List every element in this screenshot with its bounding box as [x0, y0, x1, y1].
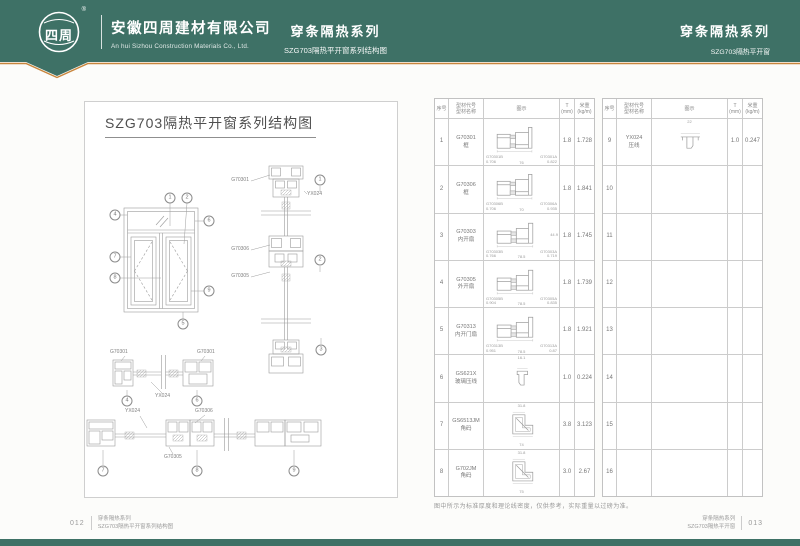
dimension-width: 78.5 — [518, 255, 526, 260]
profile-name: 内开扇 — [458, 237, 475, 244]
dimension-value: 0.706 — [486, 159, 496, 164]
dimension-value: 0.951 — [486, 348, 496, 353]
profile-section-drawing — [485, 356, 558, 400]
dimension-top: 31.8 — [518, 451, 526, 456]
cell-diagram — [651, 355, 727, 401]
profile-code-label: YX024 — [155, 394, 170, 399]
row-number: 7 — [440, 422, 443, 430]
table-note: 图中所示为标准厚度和理论线密度，仅供参考，实际重量以过磅为准。 — [434, 501, 632, 510]
row-number: 6 — [440, 375, 443, 383]
dimension-label-left: G70303B0.766 — [486, 250, 503, 259]
cell-no: 1 — [435, 119, 448, 165]
cell-thickness: 3.0 — [559, 450, 574, 496]
footer-divider-right — [741, 516, 742, 530]
weight-value: 0.247 — [745, 138, 760, 146]
weight-value: 1.745 — [577, 233, 592, 241]
footer-right: 穿条隔热系列 SZG703隔热平开窗 013 — [687, 516, 763, 530]
table-row: 3G70303内开扇G70303B0.76678.5G70303A0.71944… — [435, 213, 594, 260]
header-weight: 米重(kg/m) — [574, 99, 594, 118]
profile-table-right: 序号型材代号型材名称图示T(mm)米重(kg/m)9YX024压线221.00.… — [602, 98, 763, 497]
row-number: 9 — [608, 138, 611, 146]
cell-no: 4 — [435, 261, 448, 307]
section-callout: 3 — [316, 345, 327, 356]
weight-value: 1.728 — [577, 138, 592, 146]
cell-weight: 1.739 — [574, 261, 594, 307]
cell-diagram — [651, 450, 727, 496]
section-callout: 1 — [315, 175, 326, 186]
profile-code: G702JM — [456, 466, 477, 473]
profile-name: 玻璃压线 — [455, 379, 477, 386]
header-divider — [101, 15, 102, 49]
cell-thickness: 1.0 — [727, 119, 742, 165]
cell-weight — [742, 214, 762, 260]
cell-thickness: 3.8 — [559, 403, 574, 449]
footer-subtitle-left: SZG703隔热平开窗系列结构图 — [98, 524, 173, 530]
header-weight: 米重(kg/m) — [742, 99, 762, 118]
cell-diagram: 16.1 — [483, 355, 559, 401]
header-no: 序号 — [435, 99, 448, 118]
header-diagram: 图示 — [483, 99, 559, 118]
cell-code: GS621X玻璃压线 — [448, 355, 483, 401]
section-callout: 4 — [122, 396, 133, 407]
thickness-value: 1.0 — [563, 375, 571, 383]
profile-table-left: 序号型材代号型材名称图示T(mm)米重(kg/m)1G70301框G70301B… — [434, 98, 595, 497]
cell-code — [616, 403, 651, 449]
profile-name: 框 — [463, 190, 469, 197]
table-row: 4G70305外开扇G70305B0.90478.5G70305A0.8351.… — [435, 260, 594, 307]
cell-code: G70305外开扇 — [448, 261, 483, 307]
row-number: 16 — [606, 469, 613, 477]
cell-weight: 2.67 — [574, 450, 594, 496]
cell-no: 15 — [603, 403, 616, 449]
cell-diagram: 22 — [651, 119, 727, 165]
cell-code — [616, 450, 651, 496]
cell-no: 12 — [603, 261, 616, 307]
header-name-label: 型材名称 — [624, 109, 644, 115]
cell-weight: 1.921 — [574, 308, 594, 354]
profile-table-page: 序号型材代号型材名称图示T(mm)米重(kg/m)1G70301框G70301B… — [434, 98, 763, 497]
weight-value: 1.739 — [577, 280, 592, 288]
section-callout: 7 — [98, 466, 109, 477]
cell-weight: 0.224 — [574, 355, 594, 401]
registered-trademark-icon: ® — [82, 7, 86, 13]
profile-code-label: YX024 — [307, 192, 322, 197]
footer-divider-left — [91, 516, 92, 530]
cell-code — [616, 261, 651, 307]
header-no: 序号 — [603, 99, 616, 118]
thickness-value: 1.8 — [563, 327, 571, 335]
profile-code: G70306 — [456, 182, 476, 189]
cell-weight: 0.247 — [742, 119, 762, 165]
thickness-value: 1.8 — [563, 186, 571, 194]
row-number: 4 — [440, 280, 443, 288]
footer-left: 012 穿条隔热系列 SZG703隔热平开窗系列结构图 — [70, 516, 173, 530]
cell-code — [616, 308, 651, 354]
table-row: 15 — [603, 402, 762, 449]
series-title-center: 穿条隔热系列 — [248, 21, 423, 40]
header-diagram-label: 图示 — [516, 106, 526, 112]
cell-code: YX024压线 — [616, 119, 651, 165]
section-callout: 8 — [192, 466, 203, 477]
row-number: 1 — [440, 138, 443, 146]
profile-code-label: G70306 — [231, 247, 249, 252]
weight-value: 1.921 — [577, 327, 592, 335]
profile-name: 外开扇 — [458, 284, 475, 291]
row-number: 13 — [606, 327, 613, 335]
dimension-label-left: G70306B0.706 — [486, 202, 503, 211]
header-weight-unit: (kg/m) — [577, 109, 591, 115]
profile-name: 内开门扇 — [455, 332, 477, 339]
cell-code — [616, 166, 651, 212]
thickness-value: 3.8 — [563, 422, 571, 430]
cell-diagram — [651, 166, 727, 212]
table-row: 11 — [603, 213, 762, 260]
section-callout: 4 — [110, 210, 121, 221]
cell-weight: 1.728 — [574, 119, 594, 165]
header-diagram: 图示 — [651, 99, 727, 118]
table-header-row: 序号型材代号型材名称图示T(mm)米重(kg/m) — [603, 99, 762, 118]
table-header-row: 序号型材代号型材名称图示T(mm)米重(kg/m) — [435, 99, 594, 118]
profile-name: 角码 — [460, 426, 471, 433]
profile-section-drawing — [653, 120, 726, 164]
cell-no: 10 — [603, 166, 616, 212]
cell-thickness: 1.0 — [559, 355, 574, 401]
table-row: 7GS6513JM角码31.8743.83.123 — [435, 402, 594, 449]
cell-diagram: G70303B0.76678.5G70303A0.71944.9 — [483, 214, 559, 260]
footer-subtitle-right: SZG703隔热平开窗 — [687, 524, 735, 530]
cell-no: 13 — [603, 308, 616, 354]
profile-name: 框 — [463, 143, 469, 150]
dimension-label-right: G70301A0.822 — [540, 155, 557, 164]
section-callout: 2 — [182, 193, 193, 204]
cell-weight: 3.123 — [574, 403, 594, 449]
profile-code-label: G70305 — [231, 274, 249, 279]
dimension-top: 31.8 — [518, 404, 526, 409]
cell-code: G70306框 — [448, 166, 483, 212]
table-row: 8G702JM角码31.8753.02.67 — [435, 449, 594, 496]
table-row: 2G70306框G70306B0.70670G70306A0.9351.81.8… — [435, 165, 594, 212]
table-row: 16 — [603, 449, 762, 496]
table-row: 10 — [603, 165, 762, 212]
series-subtitle-right: SZG703隔热平开窗 — [680, 46, 770, 56]
cell-no: 2 — [435, 166, 448, 212]
dimension-label-right: G70303A0.719 — [540, 250, 557, 259]
header-no-label: 序号 — [604, 106, 614, 112]
row-number: 12 — [606, 280, 613, 288]
profile-code: G70303 — [456, 229, 476, 236]
dimension-label-left: G70301B0.706 — [486, 155, 503, 164]
table-row: 14 — [603, 354, 762, 401]
structure-diagram — [85, 102, 399, 499]
thickness-value: 3.0 — [563, 469, 571, 477]
company-name: 安徽四周建材有限公司 — [111, 17, 271, 38]
header-thickness: T(mm) — [559, 99, 574, 118]
bottom-accent-strip — [0, 539, 800, 546]
cell-thickness — [727, 355, 742, 401]
page-number-left: 012 — [70, 520, 85, 527]
cell-thickness: 1.8 — [559, 166, 574, 212]
table-row: 5G70313内开门扇G70313B0.95178.5G70313A0.871.… — [435, 307, 594, 354]
cell-diagram: 31.874 — [483, 403, 559, 449]
company-block: 安徽四周建材有限公司 An hui Sizhou Construction Ma… — [111, 17, 271, 50]
page-number-right: 013 — [748, 520, 763, 527]
profile-code: GS6513JM — [452, 418, 480, 425]
cell-no: 5 — [435, 308, 448, 354]
cell-weight — [742, 261, 762, 307]
section-callout: 5 — [178, 319, 189, 330]
row-number: 5 — [440, 327, 443, 335]
table-row: 9YX024压线221.00.247 — [603, 118, 762, 165]
row-number: 10 — [606, 186, 613, 194]
header-no-label: 序号 — [436, 106, 446, 112]
dimension-top: 16.1 — [518, 356, 526, 361]
profile-code: GS621X — [456, 371, 477, 378]
weight-value: 2.67 — [579, 469, 591, 477]
dimension-label-left: G70305B0.904 — [486, 297, 503, 306]
cell-thickness: 1.8 — [559, 261, 574, 307]
dimension-bottom: 74 — [519, 443, 523, 448]
cell-weight — [742, 166, 762, 212]
series-title-right: 穿条隔热系列 — [680, 21, 770, 40]
dimension-label-right: G70305A0.835 — [540, 297, 557, 306]
section-callout: 2 — [315, 255, 326, 266]
dimension-label-right: G70313A0.87 — [540, 344, 557, 353]
dimension-width: 78.5 — [518, 350, 526, 355]
profile-code: YX024 — [626, 135, 643, 142]
header-thickness: T(mm) — [727, 99, 742, 118]
section-callout: 7 — [110, 252, 121, 263]
company-logo: 四周 ® — [36, 6, 88, 60]
section-callout: 6 — [192, 396, 203, 407]
cell-thickness — [727, 308, 742, 354]
cell-thickness — [727, 261, 742, 307]
series-block-right: 穿条隔热系列 SZG703隔热平开窗 — [680, 21, 770, 56]
cell-weight: 1.841 — [574, 166, 594, 212]
company-name-en: An hui Sizhou Construction Materials Co.… — [111, 43, 271, 50]
dimension-width: 70 — [519, 208, 523, 213]
section-callout: 9 — [204, 286, 215, 297]
cell-no: 9 — [603, 119, 616, 165]
section-callout: 6 — [204, 216, 215, 227]
cell-thickness — [727, 450, 742, 496]
cell-code: GS6513JM角码 — [448, 403, 483, 449]
cell-no: 16 — [603, 450, 616, 496]
row-number: 2 — [440, 186, 443, 194]
cell-weight — [742, 450, 762, 496]
cell-code — [616, 214, 651, 260]
profile-code-label: G70301 — [110, 350, 128, 355]
table-row: 13 — [603, 307, 762, 354]
footer-series-right: 穿条隔热系列 — [687, 516, 735, 522]
thickness-value: 1.8 — [563, 233, 571, 241]
cell-no: 6 — [435, 355, 448, 401]
cell-diagram: G70301B0.70676G70301A0.822 — [483, 119, 559, 165]
header-diagram-label: 图示 — [684, 106, 694, 112]
row-number: 3 — [440, 233, 443, 241]
profile-section-drawing — [485, 451, 558, 495]
cell-thickness: 1.8 — [559, 214, 574, 260]
cell-weight: 1.745 — [574, 214, 594, 260]
cell-no: 3 — [435, 214, 448, 260]
cell-diagram — [651, 214, 727, 260]
cell-thickness — [727, 403, 742, 449]
profile-code: G70301 — [456, 135, 476, 142]
table-row: 12 — [603, 260, 762, 307]
weight-value: 0.224 — [577, 375, 592, 383]
section-callout: 9 — [289, 466, 300, 477]
logo-text: 四周 — [36, 25, 82, 44]
cell-thickness — [727, 166, 742, 212]
table-row: 6GS621X玻璃压线16.11.00.224 — [435, 354, 594, 401]
cell-diagram: G70313B0.95178.5G70313A0.87 — [483, 308, 559, 354]
profile-code-label: G70301 — [197, 350, 215, 355]
cell-weight — [742, 355, 762, 401]
dimension-top: 22 — [687, 120, 691, 125]
cell-code: G70301框 — [448, 119, 483, 165]
cell-code — [616, 355, 651, 401]
cell-diagram — [651, 308, 727, 354]
dimension-value: 0.822 — [547, 159, 557, 164]
header-code: 型材代号型材名称 — [616, 99, 651, 118]
thickness-value: 1.8 — [563, 280, 571, 288]
profile-code: G70305 — [456, 277, 476, 284]
cell-thickness — [727, 214, 742, 260]
cell-weight — [742, 308, 762, 354]
header-name-label: 型材名称 — [456, 109, 476, 115]
cell-diagram — [651, 403, 727, 449]
series-subtitle-center: SZG703隔热平开窗系列结构图 — [248, 45, 423, 56]
dimension-width: 78.5 — [518, 302, 526, 307]
header-t-unit: (mm) — [729, 109, 741, 115]
thickness-value: 1.8 — [563, 138, 571, 146]
profile-name: 角码 — [460, 473, 471, 480]
dimension-bottom: 75 — [519, 490, 523, 495]
dimension-value: 0.87 — [549, 348, 557, 353]
cell-code: G70303内开扇 — [448, 214, 483, 260]
catalog-spread: 四周 ® 安徽四周建材有限公司 An hui Sizhou Constructi… — [0, 0, 800, 546]
thickness-value: 1.0 — [731, 138, 739, 146]
dimension-label-right: G70306A0.935 — [540, 202, 557, 211]
cell-diagram: 31.875 — [483, 450, 559, 496]
cell-diagram — [651, 261, 727, 307]
cell-code: G70313内开门扇 — [448, 308, 483, 354]
row-number: 15 — [606, 422, 613, 430]
cell-no: 7 — [435, 403, 448, 449]
dimension-value: 0.835 — [547, 300, 557, 305]
dimension-value: 0.935 — [547, 206, 557, 211]
footer-series-left: 穿条隔热系列 — [98, 516, 173, 522]
dimension-value: 0.766 — [486, 253, 496, 258]
dimension-width: 76 — [519, 161, 523, 166]
profile-code-label: G70305 — [164, 455, 182, 460]
dimension-label-left: G70313B0.951 — [486, 344, 503, 353]
weight-value: 3.123 — [577, 422, 592, 430]
row-number: 11 — [606, 233, 612, 241]
section-callout: 8 — [110, 273, 121, 284]
dimension-value: 0.706 — [486, 206, 496, 211]
row-number: 8 — [440, 469, 443, 477]
cell-code: G702JM角码 — [448, 450, 483, 496]
structure-diagram-page: SZG703隔热平开窗系列结构图 — [84, 101, 398, 498]
dimension-height: 44.9 — [550, 233, 558, 238]
header-t-unit: (mm) — [561, 109, 573, 115]
cell-thickness: 1.8 — [559, 308, 574, 354]
table-row: 1G70301框G70301B0.70676G70301A0.8221.81.7… — [435, 118, 594, 165]
header-band: 四周 ® 安徽四周建材有限公司 An hui Sizhou Constructi… — [0, 0, 800, 82]
header-code: 型材代号型材名称 — [448, 99, 483, 118]
profile-name: 压线 — [628, 143, 639, 150]
header-weight-unit: (kg/m) — [745, 109, 759, 115]
section-callout: 1 — [165, 193, 176, 204]
profile-code: G70313 — [456, 324, 476, 331]
weight-value: 1.841 — [577, 186, 592, 194]
cell-no: 8 — [435, 450, 448, 496]
profile-section-drawing — [485, 404, 558, 448]
profile-code-label: G70306 — [195, 409, 213, 414]
cell-weight — [742, 403, 762, 449]
series-block-center: 穿条隔热系列 SZG703隔热平开窗系列结构图 — [248, 21, 423, 56]
cell-thickness: 1.8 — [559, 119, 574, 165]
profile-code-label: G70301 — [231, 178, 249, 183]
dimension-value: 0.719 — [547, 253, 557, 258]
cell-no: 11 — [603, 214, 616, 260]
cell-no: 14 — [603, 355, 616, 401]
cell-diagram: G70306B0.70670G70306A0.935 — [483, 166, 559, 212]
dimension-value: 0.904 — [486, 300, 496, 305]
profile-code-label: YX024 — [125, 409, 140, 414]
row-number: 14 — [606, 375, 613, 383]
cell-diagram: G70305B0.90478.5G70305A0.835 — [483, 261, 559, 307]
